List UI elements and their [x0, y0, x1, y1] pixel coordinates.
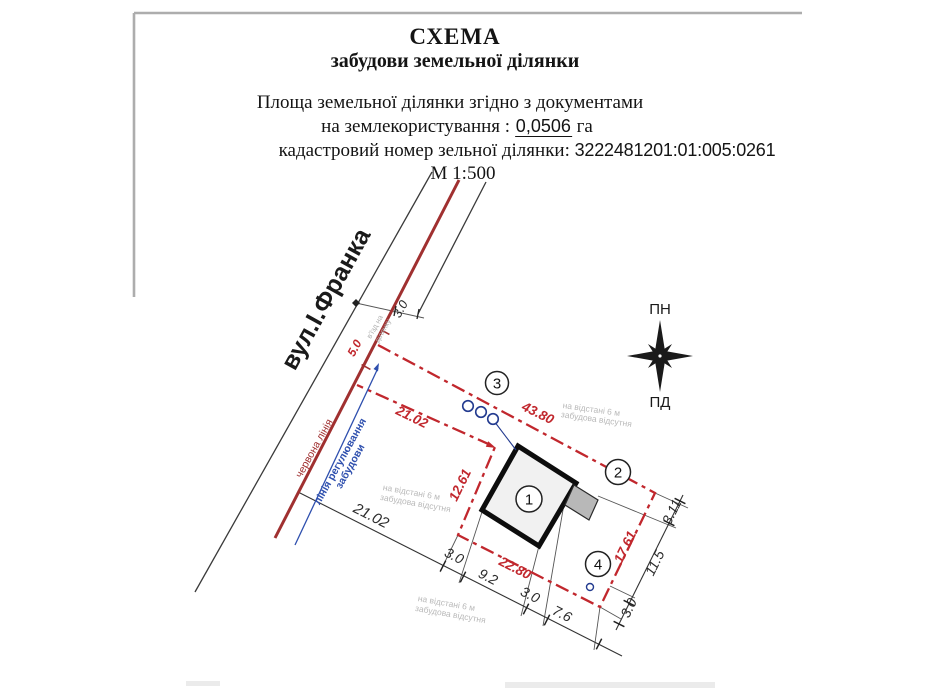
street-lines: [195, 172, 486, 592]
compass-north-label: ПН: [649, 301, 671, 318]
street-offset-dimension: [352, 299, 419, 319]
dim-seg-c: 3.0: [518, 583, 543, 606]
compass-south-label: ПД: [650, 394, 671, 411]
dim-upper-2102: 21.02: [393, 402, 431, 431]
dim-bottom-2280: 22.80: [496, 553, 534, 582]
bottom-dimension-chain: [295, 487, 622, 656]
marker-2-label: 2: [614, 465, 622, 482]
marker-3-label: 3: [493, 376, 501, 393]
dim-left-1261: 12.61: [446, 467, 474, 504]
scan-smudge: [186, 681, 220, 686]
well-circle: [463, 401, 474, 412]
well-circle: [488, 414, 499, 425]
marker-4-label: 4: [594, 557, 602, 574]
dim-right-1761: 17.61: [611, 529, 639, 566]
regulation-line-arrow: [374, 363, 380, 372]
dim-seg-a: 3.0: [442, 544, 467, 567]
survey-point: [587, 584, 594, 591]
street-edge-right: [418, 182, 486, 314]
street-edge-left: [195, 172, 432, 592]
scan-smudge: [505, 682, 715, 688]
survey-diamond-mark: [352, 299, 360, 307]
dim-street-offset: 3.0: [390, 298, 411, 320]
dim-chain-total: 21.02: [350, 499, 393, 532]
dim-seg-b: 9.2: [476, 565, 501, 588]
scheme-page: СХЕМА забудови земельної ділянки Площа з…: [0, 0, 933, 700]
site-plan-drawing: 1 2 3 4 ПН ПД вул.І.Франка червона лінія…: [0, 0, 933, 700]
dim-right-a: 3.0: [617, 595, 640, 620]
well-circle: [476, 407, 487, 418]
dim-top-4380: 43.80: [519, 398, 557, 427]
compass-rose: ПН ПД: [627, 301, 693, 411]
marker-1-label: 1: [525, 492, 533, 509]
dim-right-b: 11.5: [642, 547, 668, 578]
dim-entrance-50: 5.0: [344, 337, 364, 359]
street-name-label: вул.І.Франка: [276, 223, 377, 375]
scan-frame: [134, 13, 802, 688]
